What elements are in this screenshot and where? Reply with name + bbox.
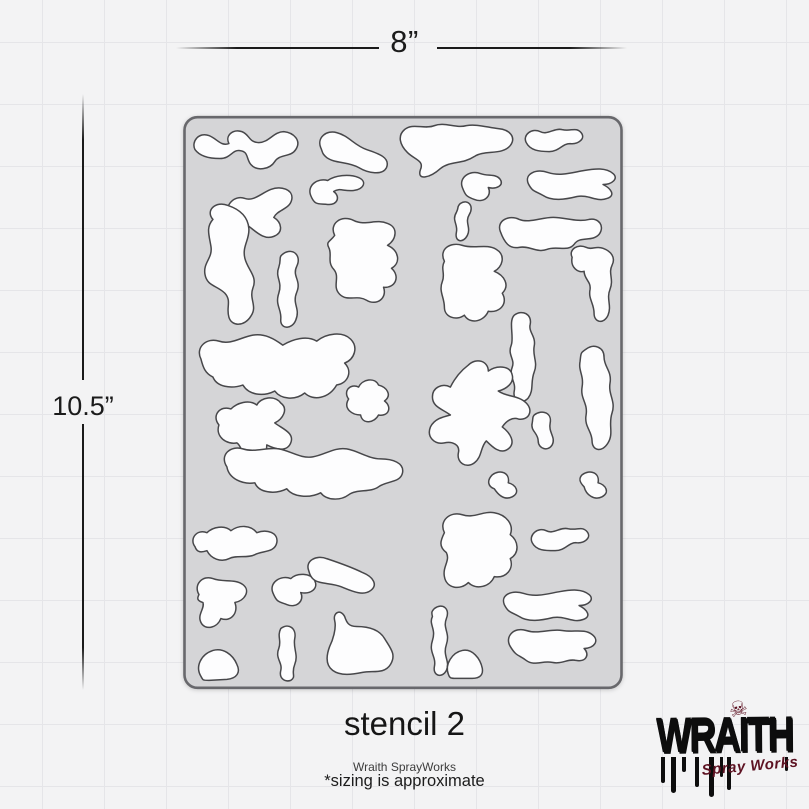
ink-drip	[671, 757, 676, 793]
brand-logo: ☠ WRAITH Spray Works	[655, 699, 807, 803]
product-image: 8” 10.5” stencil 2 Wraith SprayWorks *si…	[0, 0, 809, 809]
ink-drip	[695, 757, 699, 787]
camo-cutout	[508, 630, 595, 664]
camo-cutout	[441, 244, 506, 321]
height-dimension-label: 10.5”	[33, 391, 133, 422]
ink-drip	[661, 757, 665, 783]
logo-wordmark: WRAITH	[656, 710, 792, 760]
stencil-svg	[183, 115, 623, 690]
ink-drip	[682, 757, 686, 772]
camo-cutout	[278, 626, 297, 681]
height-dimension-line-bottom	[82, 424, 84, 690]
camo-cutout	[278, 251, 299, 327]
height-dimension-line-top	[82, 94, 84, 380]
width-dimension-label: 8”	[0, 24, 809, 60]
